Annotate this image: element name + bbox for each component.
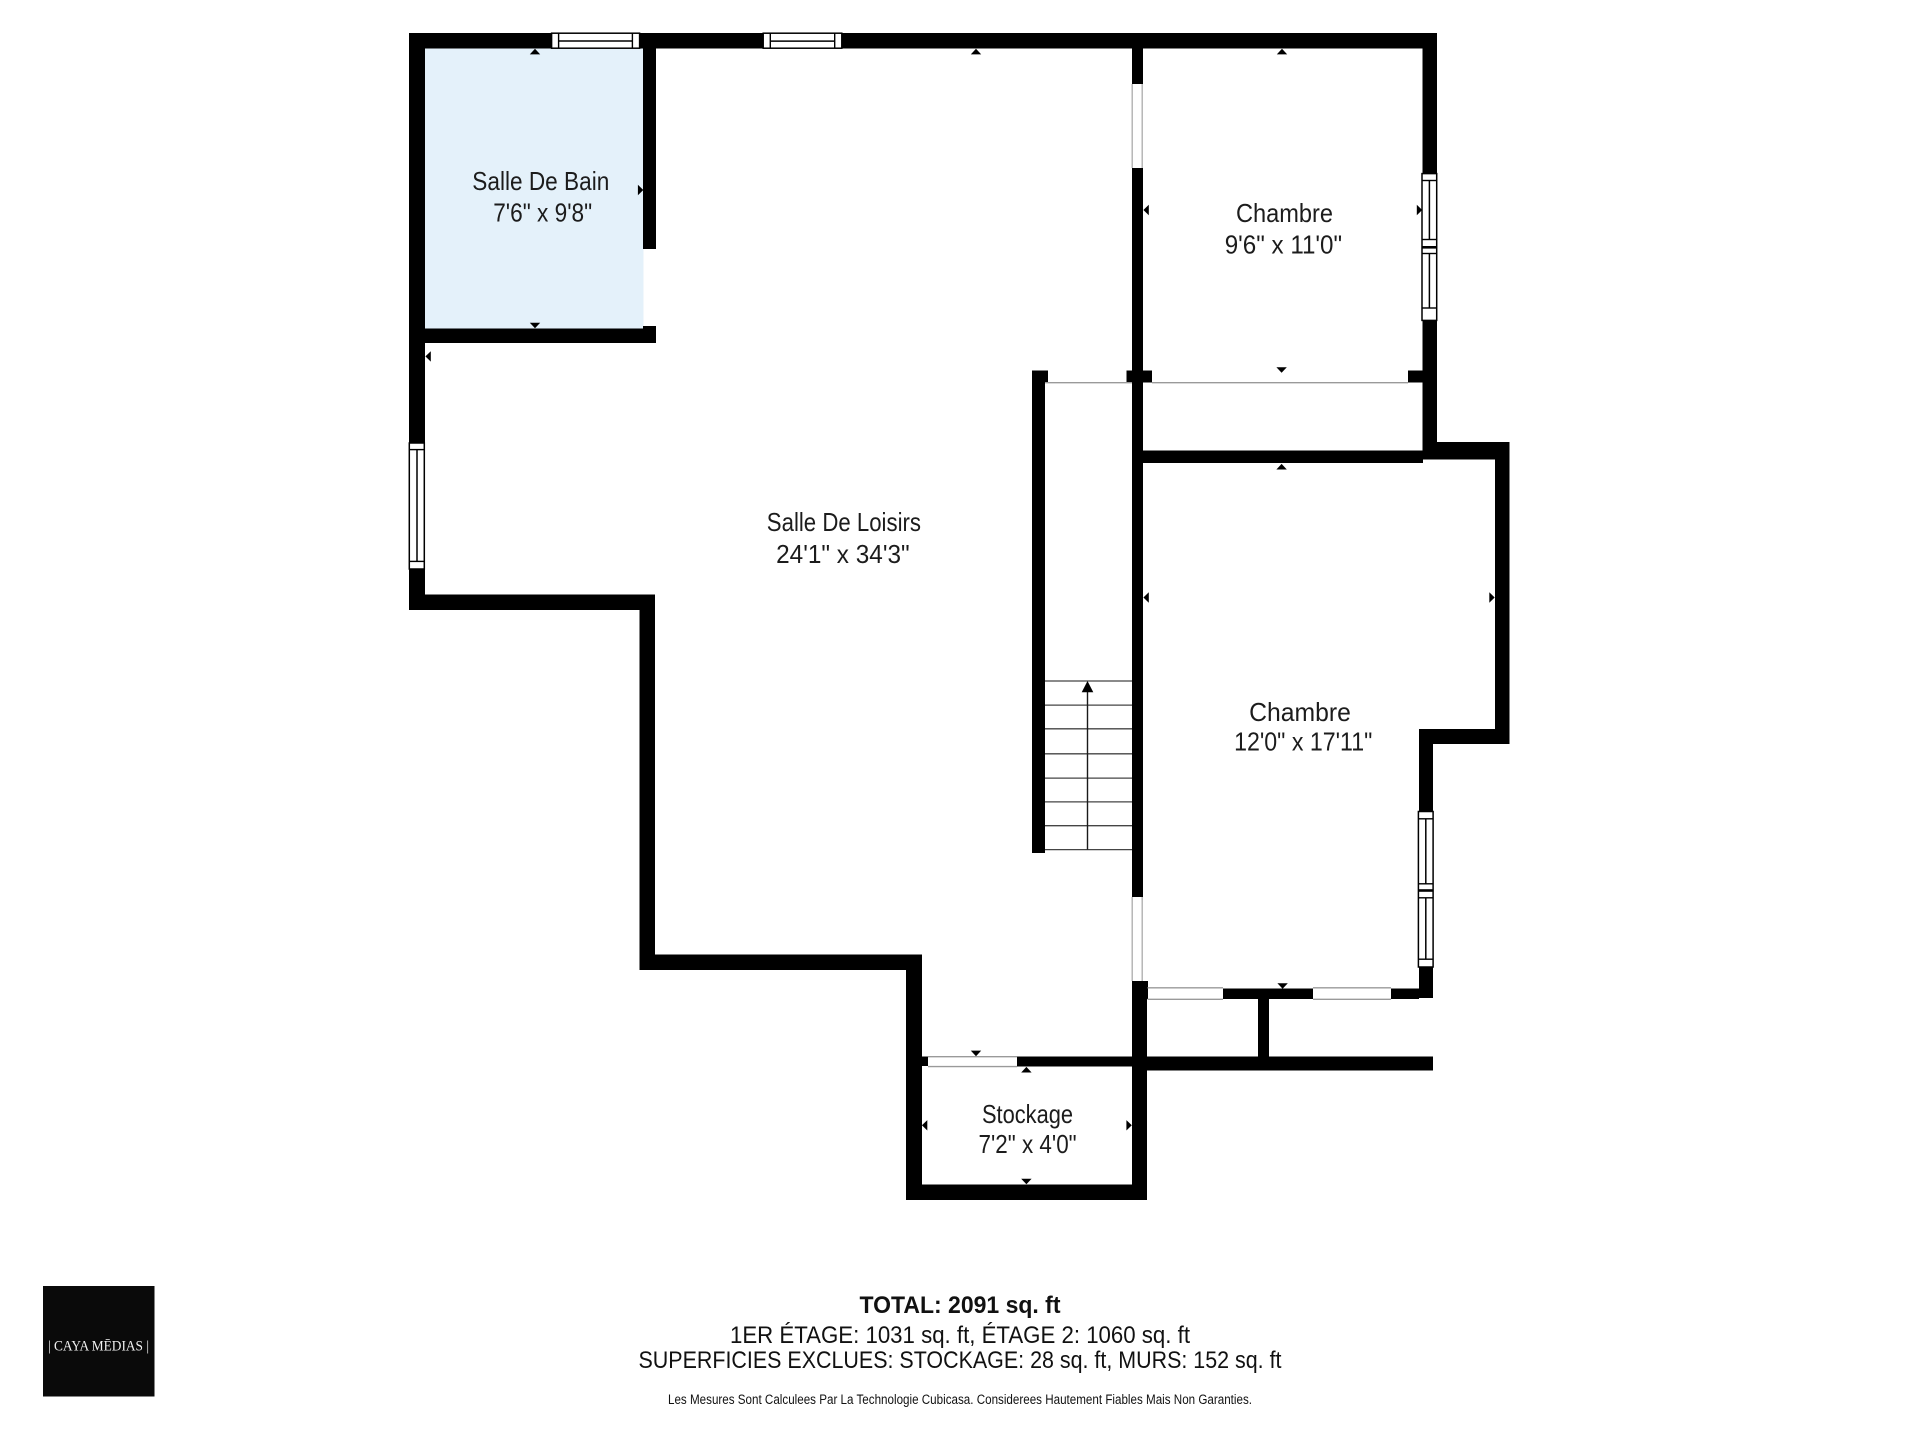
svg-text:7'2" x 4'0": 7'2" x 4'0" bbox=[979, 1129, 1077, 1159]
svg-text:TOTAL: 2091 sq. ft: TOTAL: 2091 sq. ft bbox=[860, 1292, 1061, 1319]
svg-text:1ER ÉTAGE: 1031 sq. ft, ÉTAGE: 1ER ÉTAGE: 1031 sq. ft, ÉTAGE 2: 1060 sq… bbox=[730, 1322, 1190, 1349]
svg-text:7'6" x 9'8": 7'6" x 9'8" bbox=[493, 198, 592, 228]
svg-text:Stockage: Stockage bbox=[982, 1099, 1073, 1129]
svg-text:SUPERFICIES EXCLUES: STOCKAGE:: SUPERFICIES EXCLUES: STOCKAGE: 28 sq. ft… bbox=[639, 1347, 1282, 1374]
svg-text:Salle De Bain: Salle De Bain bbox=[472, 166, 609, 196]
svg-text:| CAYA MĒDIAS |: | CAYA MĒDIAS | bbox=[48, 1338, 149, 1354]
svg-text:Salle De Loisirs: Salle De Loisirs bbox=[767, 507, 921, 537]
svg-text:9'6" x 11'0": 9'6" x 11'0" bbox=[1225, 230, 1342, 260]
svg-text:Chambre: Chambre bbox=[1236, 198, 1333, 228]
svg-text:Chambre: Chambre bbox=[1249, 697, 1351, 727]
svg-text:24'1" x 34'3": 24'1" x 34'3" bbox=[776, 539, 910, 569]
svg-text:Les Mesures Sont Calculees Par: Les Mesures Sont Calculees Par La Techno… bbox=[668, 1392, 1252, 1407]
svg-text:12'0" x 17'11": 12'0" x 17'11" bbox=[1234, 727, 1372, 757]
